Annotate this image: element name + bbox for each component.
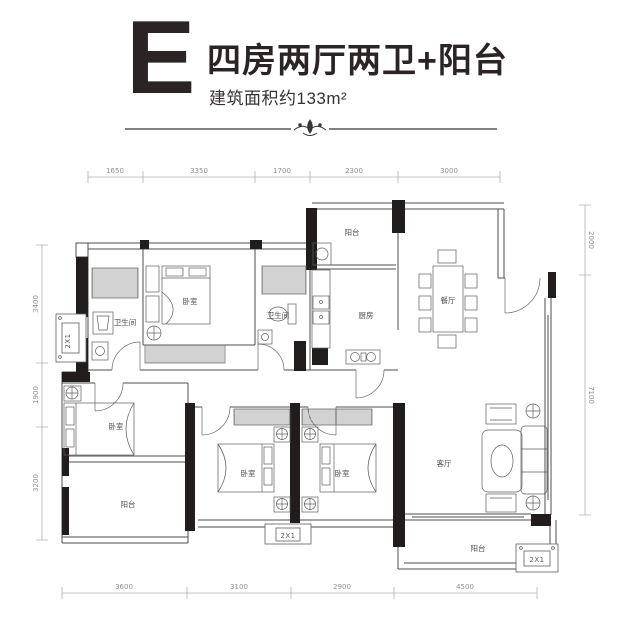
room-label-bath-left: 卫生间 xyxy=(114,317,137,327)
room-label-balcony-top: 阳台 xyxy=(345,227,360,237)
walls-piers xyxy=(62,200,556,547)
washbasin-left xyxy=(93,312,113,334)
floorplan-page: E 四房两厅两卫+阳台 建筑面积约133m² xyxy=(0,0,627,627)
room-label-bath-mid: 卫生间 xyxy=(267,310,290,320)
dim-top-1: 3350 xyxy=(190,167,208,175)
ac-label-right: 2X1 xyxy=(529,556,544,564)
shower-left xyxy=(92,268,138,298)
dim-left-1: 1900 xyxy=(32,386,40,404)
bed-left xyxy=(64,386,134,455)
divider-ornament-icon xyxy=(294,120,326,136)
floorplan-svg: 1650 3350 1700 2300 3000 3600 3100 2900 … xyxy=(0,0,627,627)
ac-unit-left: 2X1 xyxy=(56,314,86,362)
dim-top-3: 2300 xyxy=(345,167,363,175)
room-label-dining: 餐厅 xyxy=(441,296,456,305)
dim-left-2: 3200 xyxy=(32,474,40,492)
wardrobe-top xyxy=(145,345,225,363)
dim-bottom-2: 2900 xyxy=(333,583,351,591)
room-label-bedroom-c2: 卧室 xyxy=(335,468,350,478)
kitchen-counter xyxy=(312,270,330,348)
shower-mid xyxy=(262,266,306,294)
dim-bottom-0: 3600 xyxy=(115,583,133,591)
toilet-left xyxy=(92,342,108,360)
sink-mid xyxy=(258,330,272,344)
ac-unit-bottom-center: 2X1 xyxy=(265,524,311,544)
dim-bottom-3: 4500 xyxy=(456,583,474,591)
header-divider xyxy=(125,120,497,136)
room-label-balcony-right: 阳台 xyxy=(471,543,486,553)
room-label-bedroom-top: 卧室 xyxy=(183,296,198,306)
dim-right-1: 7100 xyxy=(587,386,595,404)
room-label-bedroom-left: 卧室 xyxy=(109,421,124,431)
room-label-bedroom-c1: 卧室 xyxy=(241,468,256,478)
dim-top-2: 1700 xyxy=(273,167,291,175)
stove xyxy=(346,350,380,364)
ac-label-center: 2X1 xyxy=(280,532,295,540)
dim-top-0: 1650 xyxy=(106,167,124,175)
furniture xyxy=(64,243,547,512)
ac-unit-bottom-right: 2X1 xyxy=(516,544,558,572)
bed-center-1 xyxy=(218,409,290,512)
ac-units: 2X1 2X1 2X1 xyxy=(56,314,558,572)
room-label-living: 客厅 xyxy=(437,458,452,468)
room-label-balcony-left: 阳台 xyxy=(121,499,136,509)
dim-top-4: 3000 xyxy=(440,167,458,175)
ac-label-left: 2X1 xyxy=(64,333,72,348)
bed-top xyxy=(146,266,210,340)
room-label-kitchen: 厨房 xyxy=(359,310,374,320)
dim-left-0: 3400 xyxy=(32,295,40,313)
sofa-set xyxy=(482,404,547,512)
bed-center-2 xyxy=(302,409,376,512)
dim-right-0: 2000 xyxy=(587,231,595,249)
dim-bottom-1: 3100 xyxy=(230,583,248,591)
